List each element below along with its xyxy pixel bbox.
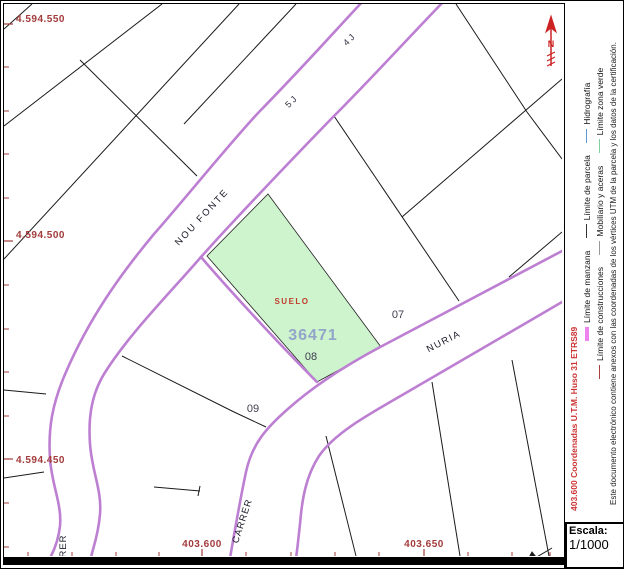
street-label-nou-fonte: NOU FONTE [173, 187, 231, 249]
parcel-number-08: 08 [305, 351, 317, 363]
map-svg: 4.594.550 4.594.500 4.594.450 403.600 40… [4, 4, 562, 556]
scale-label: Escala: [569, 525, 624, 537]
legend-row-1: Límite de manzana Límite de parcela Hidr… [581, 3, 594, 519]
manzana-line-symbol [585, 327, 589, 341]
portal-label-4j: 4 J [341, 32, 357, 48]
cadastral-map-page: 4.594.550 4.594.500 4.594.450 403.600 40… [0, 0, 624, 569]
y-coordinate-label-550: 4.594.550 [16, 14, 65, 25]
scale-box: Escala: 1/1000 [565, 522, 624, 569]
certification-disclaimer: Este documento electrónico contiene anex… [607, 3, 620, 519]
x-coordinate-label-600: 403.600 [182, 539, 222, 550]
x-coordinate-label-650: 403.650 [404, 539, 444, 550]
legend-row-2: Límite de construcciones Mobiliario y ac… [594, 3, 607, 519]
parcela-line-symbol [586, 224, 587, 238]
mobiliario-line-symbol [599, 241, 600, 255]
street-label-carrer: CARRER [230, 498, 255, 545]
zona-verde-line-symbol [599, 139, 600, 153]
y-coordinate-label-500: 4.594.500 [16, 230, 65, 241]
parcel-number-36471[interactable]: 36471 [288, 327, 338, 344]
utm-reference-note: 403.600 Coordenadas U.T.M. Huso 31 ETRS8… [568, 3, 581, 519]
north-letter: N [548, 39, 555, 49]
legend-label-mobiliario: Mobiliario y aceras [595, 166, 605, 237]
legend-label-hidrografia: Hidrografía [582, 83, 592, 125]
legend-label-construcciones: Límite de construcciones [595, 267, 605, 361]
scale-value: 1/1000 [569, 537, 624, 552]
legend-label-manzana: Límite de manzana [582, 251, 592, 323]
legend-label-parcela: Límite de parcela [582, 155, 592, 220]
portal-label-5j: 5 J [283, 94, 299, 110]
street-label-rer: RER [58, 534, 69, 556]
legend-sidebar: 403.600 Coordenadas U.T.M. Huso 31 ETRS8… [564, 3, 623, 568]
legend-label-zona-verde: Límite zona verde [595, 68, 605, 136]
map-canvas: 4.594.550 4.594.500 4.594.450 403.600 40… [3, 3, 565, 559]
parcel-number-09: 09 [247, 403, 259, 415]
hidrografia-line-symbol [586, 129, 587, 143]
parcel-suelo-label: SUELO [274, 297, 309, 306]
map-bottom-border [3, 557, 564, 565]
parcel-number-07: 07 [392, 309, 404, 321]
north-arrow-icon: N [546, 16, 556, 66]
y-coordinate-label-450: 4.594.450 [16, 455, 65, 466]
legend-rotated-block: 403.600 Coordenadas U.T.M. Huso 31 ETRS8… [568, 3, 622, 519]
construcciones-line-symbol [599, 365, 600, 379]
road-fork-right-edge [90, 257, 201, 556]
street-label-nuria: NURIA [425, 328, 463, 355]
